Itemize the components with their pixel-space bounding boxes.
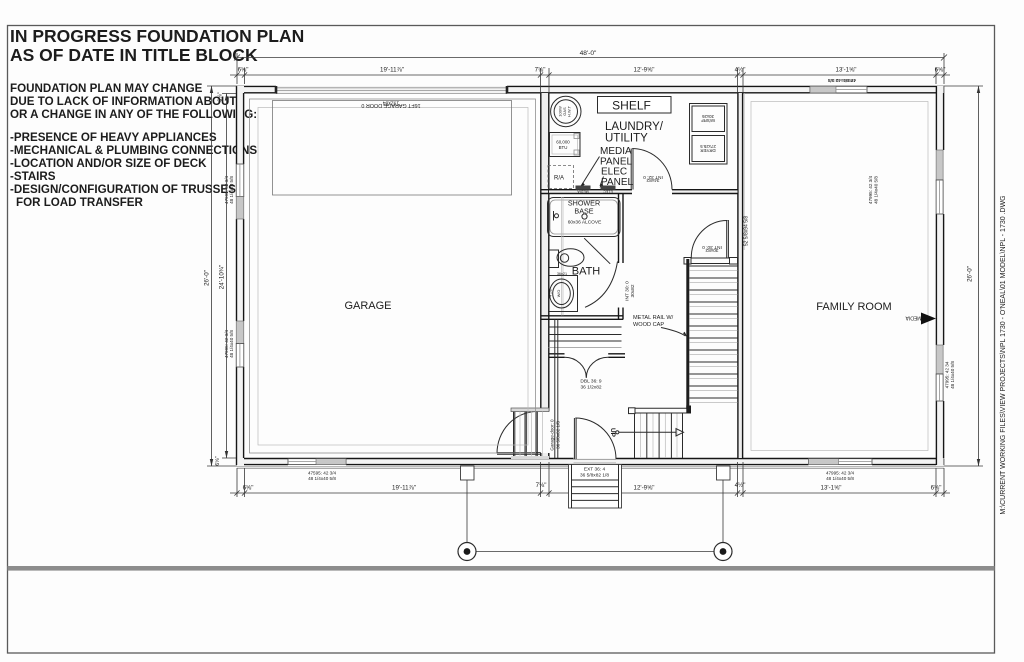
svg-text:24'-10¾": 24'-10¾" — [219, 265, 226, 289]
svg-text:36 5/8x82 1/8: 36 5/8x82 1/8 — [580, 473, 609, 479]
svg-text:7⅛": 7⅛" — [536, 482, 547, 489]
svg-text:48 1/4x40 5/8: 48 1/4x40 5/8 — [950, 361, 955, 389]
svg-text:DRYER: DRYER — [700, 148, 715, 153]
svg-text:4½": 4½" — [735, 67, 746, 74]
svg-text:6⅝": 6⅝" — [935, 67, 946, 74]
svg-text:30x82: 30x82 — [630, 284, 636, 297]
svg-text:MEDIA: MEDIA — [577, 190, 589, 194]
svg-text:METAL RAIL W/: METAL RAIL W/ — [633, 315, 674, 321]
svg-text:FOR LOAD TRANSFER: FOR LOAD TRANSFER — [16, 196, 144, 209]
svg-text:-LOCATION AND/OR SIZE OF DECK: -LOCATION AND/OR SIZE OF DECK — [10, 157, 207, 170]
svg-text:6⅝": 6⅝" — [243, 485, 254, 492]
svg-text:7⅛": 7⅛" — [535, 67, 546, 74]
svg-text:19'-11⅞": 19'-11⅞" — [392, 485, 416, 492]
svg-text:FAMILY ROOM: FAMILY ROOM — [816, 301, 891, 313]
svg-text:H.W.T: H.W.T — [567, 105, 572, 117]
svg-text:13'-1⅝": 13'-1⅝" — [836, 67, 857, 74]
svg-text:-DESIGN/CONFIGURATION OF TRUSS: -DESIGN/CONFIGURATION OF TRUSSES — [10, 183, 236, 196]
svg-text:ELEC: ELEC — [603, 190, 613, 194]
svg-text:34x82: 34x82 — [646, 177, 659, 183]
svg-text:Garage-door: 0: Garage-door: 0 — [550, 419, 555, 451]
svg-text:DUE TO LACK OF INFORMATION ABO: DUE TO LACK OF INFORMATION ABOUT — [10, 95, 237, 108]
svg-text:BASE: BASE — [574, 207, 593, 216]
svg-text:48 1/4x40 5/8: 48 1/4x40 5/8 — [229, 176, 234, 204]
svg-text:DBL 36: 9: DBL 36: 9 — [580, 379, 601, 385]
svg-text:36x21: 36x21 — [557, 272, 567, 276]
svg-text:-PRESENCE OF HEAVY APPLIANCES: -PRESENCE OF HEAVY APPLIANCES — [10, 131, 217, 144]
svg-text:IN PROGRESS FOUNDATION PLAN: IN PROGRESS FOUNDATION PLAN — [10, 26, 304, 46]
svg-text:SHELF: SHELF — [612, 99, 651, 113]
svg-text:MEDIA: MEDIA — [905, 315, 922, 321]
svg-text:R/A: R/A — [554, 176, 564, 182]
svg-text:48'-0": 48'-0" — [580, 50, 597, 57]
svg-text:OR A CHANGE IN ANY OF THE FOLL: OR A CHANGE IN ANY OF THE FOLLOWING: — [10, 108, 257, 121]
svg-text:12'-9⅝": 12'-9⅝" — [634, 485, 655, 492]
svg-text:EXT 36: 4: EXT 36: 4 — [584, 467, 606, 473]
svg-text:36 1/2x82: 36 1/2x82 — [580, 385, 601, 391]
svg-text:-STAIRS: -STAIRS — [10, 170, 56, 183]
svg-text:6⅝": 6⅝" — [238, 67, 249, 74]
svg-text:6⅝": 6⅝" — [218, 92, 224, 101]
svg-text:UP: UP — [609, 428, 616, 438]
svg-text:16FT GARAGE DOOR 0: 16FT GARAGE DOOR 0 — [361, 102, 420, 108]
svg-text:UTILITY: UTILITY — [605, 133, 648, 145]
svg-text:47995: 42 3/4: 47995: 42 3/4 — [868, 176, 873, 205]
svg-text:4 1/2: 4 1/2 — [549, 289, 553, 297]
svg-text:6⅝": 6⅝" — [215, 456, 221, 465]
svg-text:48 1/4x40 5/8: 48 1/4x40 5/8 — [874, 176, 879, 204]
svg-text:AS OF DATE IN TITLE BLOCK: AS OF DATE IN TITLE BLOCK — [10, 45, 258, 65]
svg-text:48 1/4x40 5/8: 48 1/4x40 5/8 — [229, 330, 234, 358]
svg-text:BTU: BTU — [559, 145, 568, 150]
svg-text:W/O: W/O — [557, 290, 561, 298]
svg-text:GARAGE: GARAGE — [344, 300, 391, 312]
svg-text:12'-9⅝": 12'-9⅝" — [634, 67, 655, 74]
svg-text:48 1/4x40 5/8: 48 1/4x40 5/8 — [826, 476, 854, 481]
svg-text:26'-0": 26'-0" — [204, 270, 211, 286]
svg-text:36 5/8x82 1/8: 36 5/8x82 1/8 — [556, 421, 561, 449]
svg-text:47995: 42 34: 47995: 42 34 — [945, 361, 950, 388]
svg-text:48 1/4x40 5/8: 48 1/4x40 5/8 — [828, 78, 856, 83]
svg-text:-MECHANICAL & PLUMBING CONNECT: -MECHANICAL & PLUMBING CONNECTIONS — [10, 144, 257, 157]
svg-text:4½": 4½" — [735, 482, 746, 489]
svg-text:INT 30: 0: INT 30: 0 — [625, 281, 631, 301]
svg-text:52 5/8x94 5/8: 52 5/8x94 5/8 — [744, 216, 750, 247]
svg-text:M:\CURRENT WORKING FILES\VIEW: M:\CURRENT WORKING FILES\VIEW PROJECTS\N… — [1000, 195, 1007, 514]
svg-text:LAUNDRY/: LAUNDRY/ — [605, 121, 664, 133]
svg-text:FOUNDATION PLAN MAY CHANGE: FOUNDATION PLAN MAY CHANGE — [10, 82, 203, 95]
svg-text:60,000: 60,000 — [556, 140, 570, 145]
svg-text:30x82: 30x82 — [705, 247, 718, 253]
svg-text:26'-0": 26'-0" — [967, 266, 974, 282]
svg-text:47995: 42 3/4: 47995: 42 3/4 — [826, 471, 855, 476]
svg-text:MEDIA: MEDIA — [600, 146, 632, 157]
svg-text:19'-11⅞": 19'-11⅞" — [380, 67, 404, 74]
svg-text:60x36 ALCOVE: 60x36 ALCOVE — [568, 220, 602, 226]
svg-text:13'-1⅝": 13'-1⅝" — [821, 485, 842, 492]
svg-text:47595: 42 3/4: 47595: 42 3/4 — [308, 471, 337, 476]
svg-text:W/SRF: W/SRF — [701, 118, 715, 123]
svg-text:6⅝": 6⅝" — [931, 485, 942, 492]
svg-text:ELEC: ELEC — [601, 167, 627, 178]
svg-text:WOOD CAP: WOOD CAP — [633, 322, 664, 328]
svg-text:48 1/4x40 5/8: 48 1/4x40 5/8 — [308, 476, 336, 481]
